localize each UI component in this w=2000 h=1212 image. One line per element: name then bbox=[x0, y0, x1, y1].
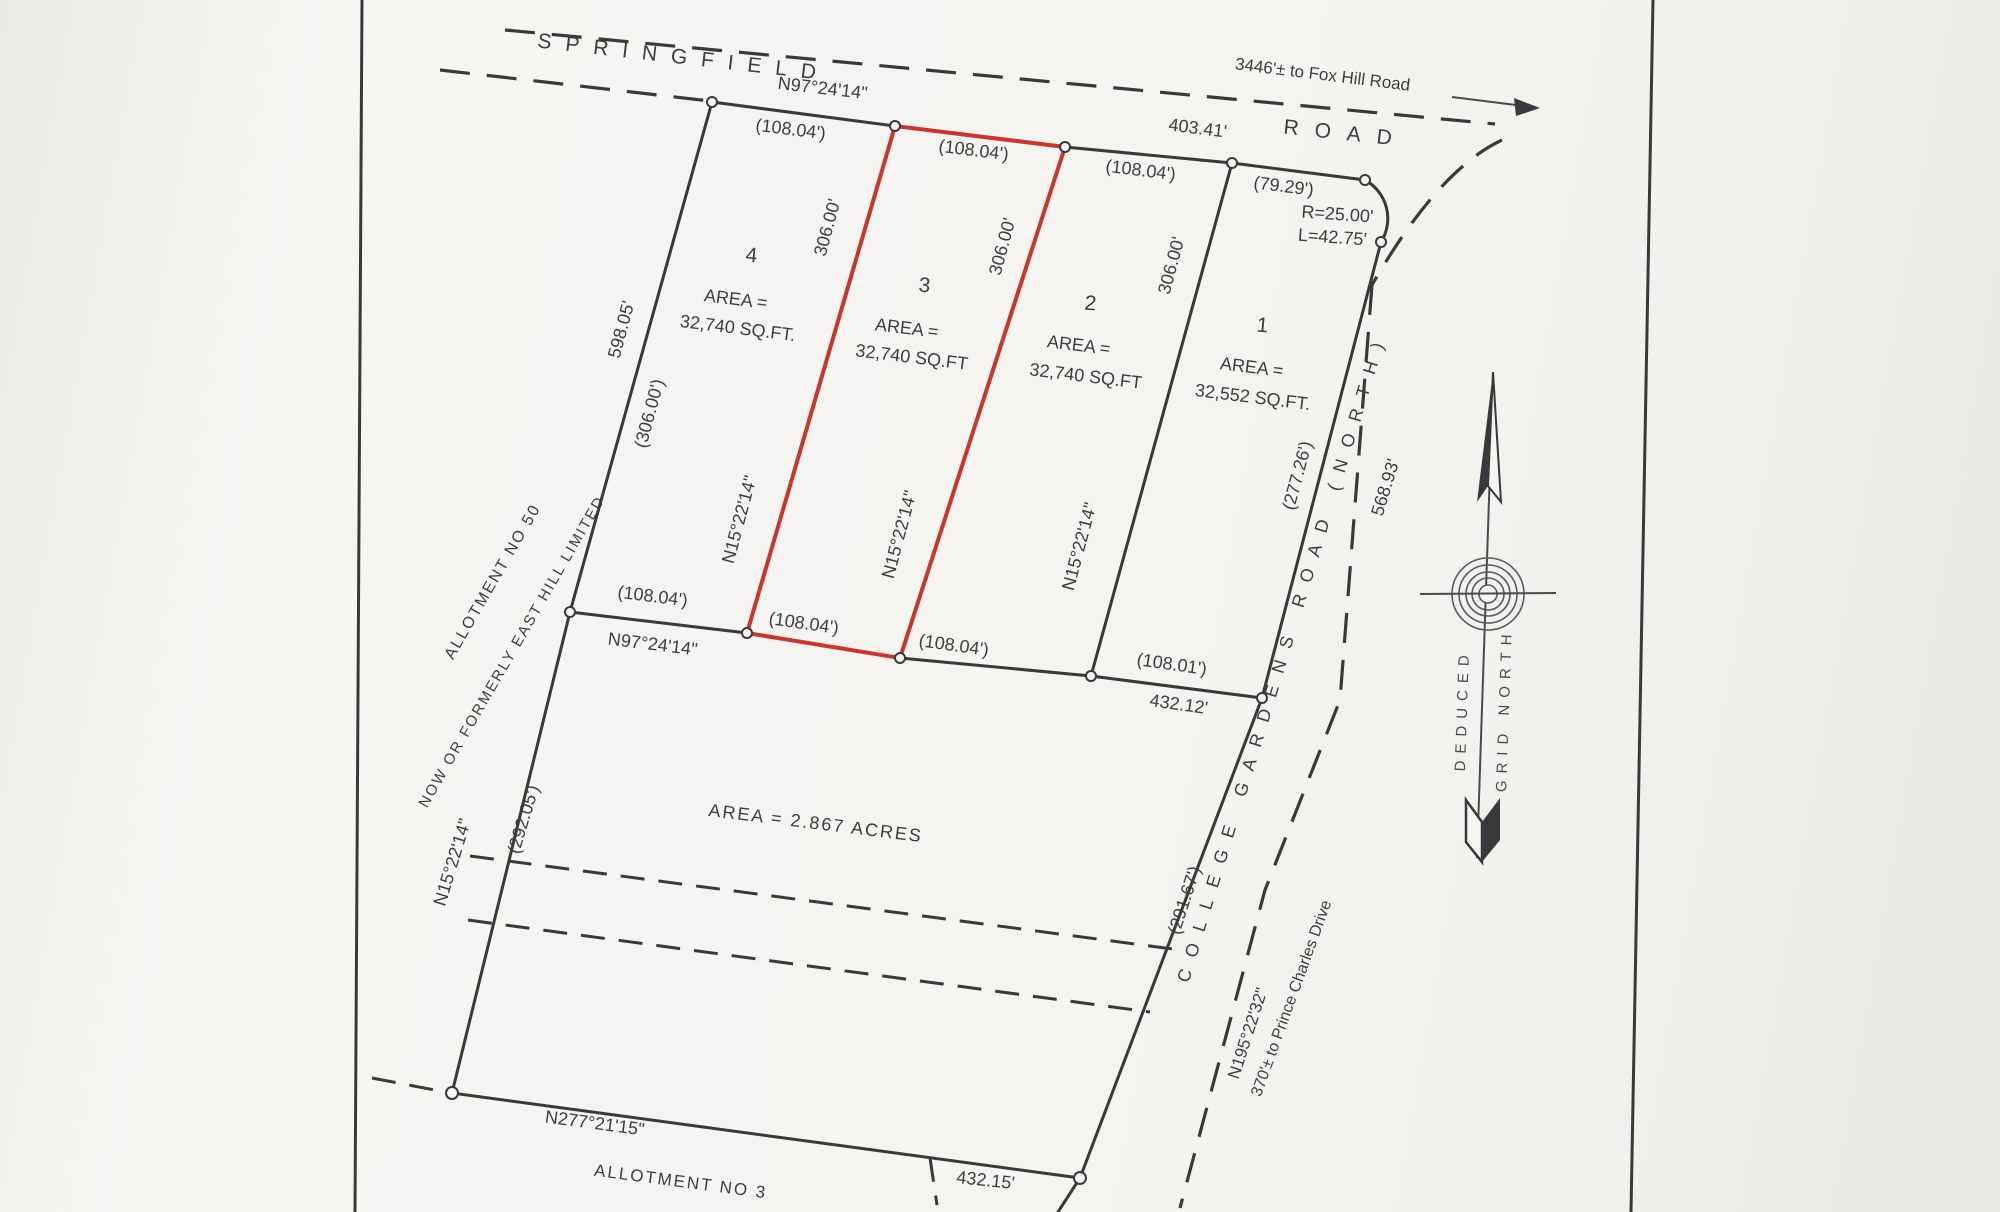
road-corner-dashed-curve bbox=[1372, 140, 1502, 285]
page-edge-left bbox=[355, 0, 362, 1212]
rear-seg2-distance: (108.04') bbox=[768, 608, 841, 638]
rear-bearing-label: N97°24'14" bbox=[607, 629, 699, 660]
south-total-tick bbox=[930, 1158, 937, 1205]
compass-crossbar bbox=[1420, 593, 1556, 594]
lot4-area-value: 32,740 SQ.FT. bbox=[679, 311, 797, 345]
parcel-area-label: AREA = 2.867 ACRES bbox=[708, 800, 924, 846]
college-total-distance: 568.93' bbox=[1367, 456, 1403, 518]
lot3-area-label: AREA = bbox=[874, 314, 940, 342]
interior-dashed-line-upper bbox=[470, 856, 1180, 950]
vertex-marker bbox=[565, 607, 575, 617]
lot3-number: 3 bbox=[918, 274, 932, 298]
south-total-distance: 432.15' bbox=[955, 1167, 1015, 1193]
lot3-red-outline bbox=[747, 126, 1065, 658]
fox-hill-arrowhead-icon bbox=[1514, 98, 1540, 116]
vertex-marker bbox=[890, 121, 900, 131]
lot1-number: 1 bbox=[1256, 314, 1270, 338]
side-distance-lot2: 306.00' bbox=[1154, 235, 1188, 297]
allotment-3-label: ALLOTMENT NO 3 bbox=[593, 1161, 768, 1203]
plat-drawing: SPRINGFIELD ROAD 3446'± to Fox Hill Road… bbox=[0, 0, 2000, 1212]
vertex-marker bbox=[1376, 237, 1386, 247]
lot4-area-label: AREA = bbox=[703, 285, 769, 313]
side-bearing-lot3: N15°22'14" bbox=[878, 488, 921, 580]
vertex-marker bbox=[446, 1087, 458, 1099]
lot2-number: 2 bbox=[1084, 292, 1098, 316]
fox-hill-arrow-line bbox=[1452, 97, 1524, 106]
springfield-road-word: ROAD bbox=[1282, 116, 1408, 152]
vertex-marker bbox=[1060, 142, 1070, 152]
survey-plat-scan: SPRINGFIELD ROAD 3446'± to Fox Hill Road… bbox=[0, 0, 2000, 1212]
lot1-area-value: 32,552 SQ.FT. bbox=[1194, 380, 1312, 414]
lot2-area-value: 32,740 SQ.FT bbox=[1028, 359, 1143, 393]
curve-length-label: L=42.75' bbox=[1297, 225, 1367, 250]
top-seg1-distance: (108.04') bbox=[755, 115, 827, 143]
vertex-marker bbox=[742, 628, 752, 638]
side-distance-lot3: 306.00' bbox=[985, 216, 1019, 278]
vertex-marker bbox=[895, 653, 905, 663]
rear-seg4-distance: (108.01') bbox=[1136, 649, 1209, 679]
lot3-area-value: 32,740 SQ.FT bbox=[854, 340, 969, 374]
west-lower-bearing: N15°22'14" bbox=[430, 816, 475, 908]
side-distance-lot4: 306.00' bbox=[810, 197, 844, 259]
lot4-west-boundary bbox=[570, 102, 712, 612]
north-arrow-word1: DEDUCED bbox=[1452, 648, 1473, 772]
north-arrowhead-right-icon bbox=[1488, 372, 1501, 502]
college-gardens-road-name: COLLEGE GARDENS ROAD (NORTH) bbox=[1173, 328, 1391, 985]
side-bearing-lot4: N15°22'14" bbox=[718, 473, 761, 565]
west-upper-distance: 598.05' bbox=[604, 299, 638, 361]
lot2-area-label: AREA = bbox=[1046, 331, 1112, 359]
vertex-marker bbox=[1360, 175, 1370, 185]
lot4-number: 4 bbox=[745, 244, 759, 268]
top-seg4-distance: (79.29') bbox=[1253, 172, 1315, 199]
lot1-area-label: AREA = bbox=[1219, 353, 1285, 381]
curve-radius-label: R=25.00' bbox=[1301, 202, 1374, 227]
north-arrow: DEDUCED GRID NORTH bbox=[1420, 372, 1556, 862]
west-upper-paren-distance: (306.00') bbox=[630, 377, 668, 450]
page-edge-right bbox=[1631, 0, 1653, 1212]
college-frontage-paren-distance: (277.26') bbox=[1278, 439, 1316, 512]
south-boundary-dashed-extension bbox=[372, 1078, 445, 1092]
top-bearing-label: N97°24'14" bbox=[777, 73, 869, 103]
springfield-road-south-dashed-edge bbox=[440, 70, 710, 101]
top-seg3-distance: (108.04') bbox=[1105, 156, 1177, 184]
side-bearing-lot2: N15°22'14" bbox=[1058, 500, 1101, 592]
vertex-marker bbox=[1227, 158, 1237, 168]
north-arrow-word2: GRID NORTH bbox=[1493, 627, 1516, 792]
vertex-marker bbox=[707, 97, 717, 107]
north-arrow-fletch-right-icon bbox=[1482, 798, 1500, 862]
rear-seg1-distance: (108.04') bbox=[617, 582, 689, 610]
vertex-marker bbox=[1074, 1172, 1086, 1184]
west-lower-paren-distance: (292.05') bbox=[503, 783, 543, 856]
rear-total-distance: 432.12' bbox=[1148, 690, 1209, 718]
lot2-lot1-boundary bbox=[1091, 163, 1232, 676]
fox-hill-distance-note: 3446'± to Fox Hill Road bbox=[1234, 54, 1411, 94]
top-total-distance: 403.41' bbox=[1167, 115, 1228, 142]
vertex-marker bbox=[1086, 671, 1096, 681]
rear-seg3-distance: (108.04') bbox=[918, 630, 991, 660]
